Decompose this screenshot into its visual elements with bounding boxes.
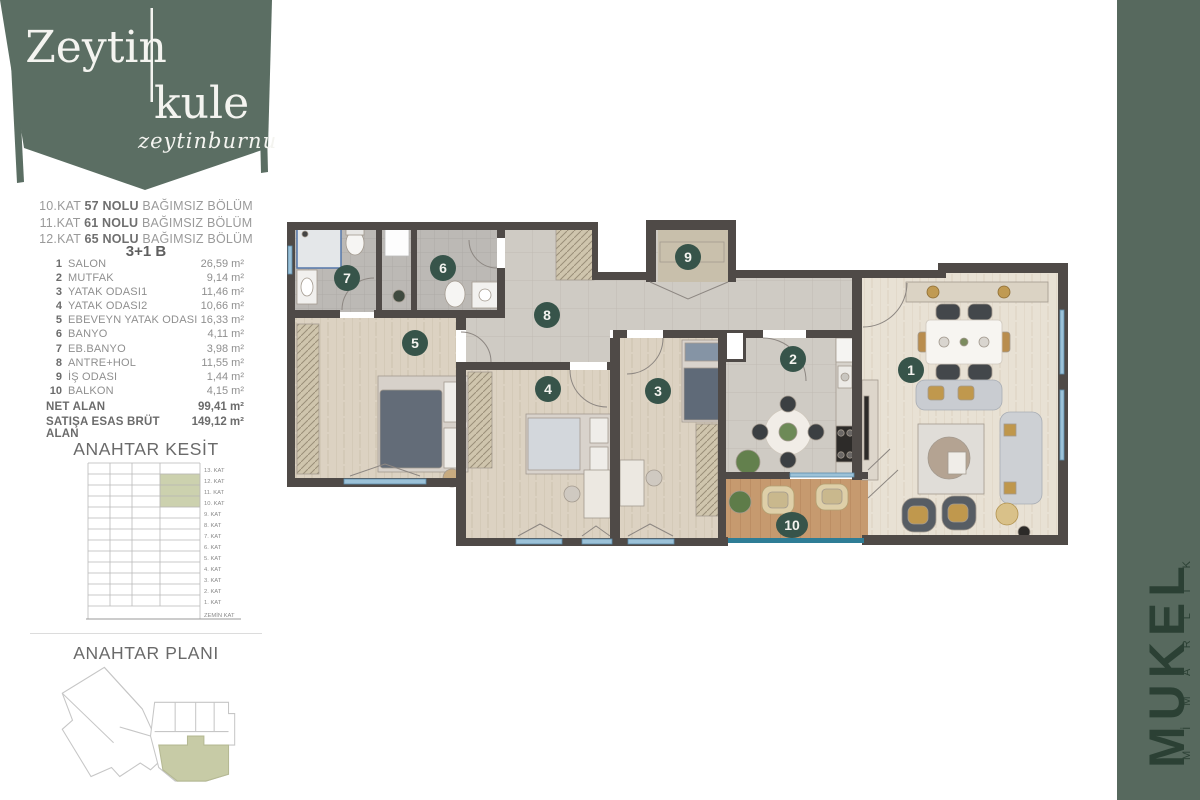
window xyxy=(1060,390,1064,460)
window xyxy=(516,539,562,544)
table-plant xyxy=(779,423,797,441)
floor-plan-sheet: Zeytin kule zeytinburnu 10.KAT 57 NOLU B… xyxy=(0,0,1200,800)
dining-chair xyxy=(936,304,960,320)
chair xyxy=(780,396,796,412)
balcony-plant xyxy=(729,491,751,513)
badge-number: 6 xyxy=(439,260,447,276)
badge-number: 3 xyxy=(654,383,662,399)
coffee-table-book xyxy=(948,452,966,474)
cushion xyxy=(1004,482,1016,494)
badge-number: 2 xyxy=(789,351,797,367)
bed-blanket xyxy=(528,418,580,470)
floor-plan-drawing: 12345678910 xyxy=(0,0,1200,800)
badge-number: 10 xyxy=(784,517,800,533)
plant xyxy=(393,290,405,302)
table-lamp xyxy=(998,286,1010,298)
dining-chair xyxy=(968,304,992,320)
pillow xyxy=(685,343,721,361)
tv xyxy=(864,396,869,460)
balcony-glazing xyxy=(728,538,864,543)
desk xyxy=(620,460,644,506)
table-lamp xyxy=(927,286,939,298)
plate xyxy=(939,337,949,347)
badge-number: 4 xyxy=(544,381,552,397)
room-badge-5: 5 xyxy=(402,330,428,356)
hall-closet xyxy=(556,226,594,280)
cushion xyxy=(1004,424,1016,436)
desk-chair xyxy=(564,486,580,502)
burner xyxy=(838,430,844,436)
plant xyxy=(736,450,760,474)
room-badge-1: 1 xyxy=(898,357,924,383)
room-badge-3: 3 xyxy=(645,378,671,404)
chair xyxy=(808,424,824,440)
window xyxy=(344,479,426,484)
room-badge-7: 7 xyxy=(334,265,360,291)
balcony-door-glass xyxy=(790,473,854,477)
badge-number: 8 xyxy=(543,307,551,323)
room-badge-8: 8 xyxy=(534,302,560,328)
window xyxy=(288,246,292,274)
desk-chair xyxy=(646,470,662,486)
plate xyxy=(979,337,989,347)
cushion xyxy=(958,386,974,400)
architect-subtitle: M İ M A R L I K xyxy=(1181,552,1193,760)
shaft-window xyxy=(385,226,409,256)
dining-chair xyxy=(936,364,960,380)
bed-blanket xyxy=(380,390,442,468)
sink-basin xyxy=(301,278,313,296)
centerpiece xyxy=(960,338,968,346)
badge-number: 5 xyxy=(411,335,419,351)
room-badge-6: 6 xyxy=(430,255,456,281)
room-badge-9: 9 xyxy=(675,244,701,270)
window xyxy=(582,539,612,544)
pillow xyxy=(590,418,608,443)
armchair-seat xyxy=(948,504,968,522)
chair-cushion xyxy=(768,492,788,508)
toilet xyxy=(445,281,465,307)
badge-number: 7 xyxy=(343,270,351,286)
wardrobe xyxy=(297,324,319,474)
sink-basin xyxy=(841,373,849,381)
shower-head xyxy=(302,231,308,237)
burner xyxy=(838,452,844,458)
chair xyxy=(752,424,768,440)
badge-number: 9 xyxy=(684,249,692,265)
room-badge-10: 10 xyxy=(776,512,808,538)
room-badge-4: 4 xyxy=(535,376,561,402)
wardrobe xyxy=(468,372,492,468)
badge-number: 1 xyxy=(907,362,915,378)
bed-blanket xyxy=(684,368,722,420)
chair xyxy=(780,452,796,468)
fridge xyxy=(836,338,854,362)
window xyxy=(1060,310,1064,374)
chair-cushion xyxy=(822,489,842,504)
sink-basin xyxy=(479,289,491,301)
floor-lamp xyxy=(996,503,1018,525)
cushion xyxy=(928,386,944,400)
armchair-seat xyxy=(908,506,928,524)
wardrobe xyxy=(696,424,718,516)
pillow xyxy=(590,447,608,472)
dining-chair xyxy=(968,364,992,380)
desk xyxy=(584,470,610,518)
room-badge-2: 2 xyxy=(780,346,806,372)
window xyxy=(628,539,674,544)
